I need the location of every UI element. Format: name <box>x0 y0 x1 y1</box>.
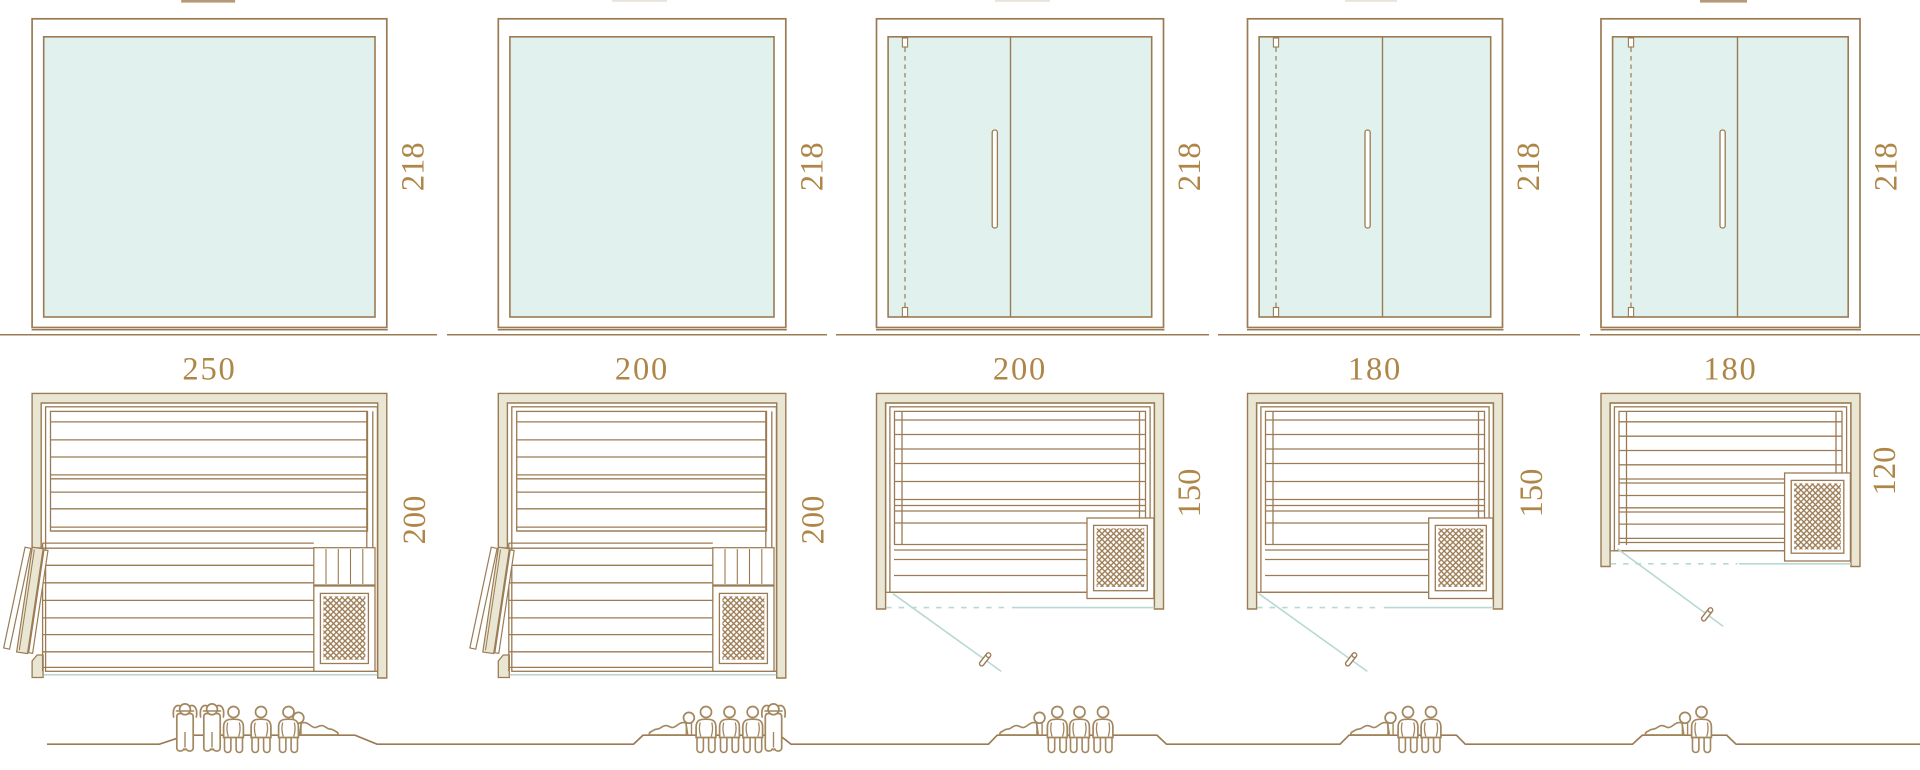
svg-text:150: 150 <box>1172 469 1208 518</box>
svg-text:218: 218 <box>1172 142 1208 191</box>
svg-text:250: 250 <box>182 352 236 388</box>
svg-text:218: 218 <box>1869 142 1905 191</box>
svg-text:180: 180 <box>1703 352 1757 388</box>
svg-text:120: 120 <box>1867 447 1903 496</box>
svg-text:200: 200 <box>796 496 832 545</box>
svg-text:218: 218 <box>794 142 830 191</box>
svg-text:200: 200 <box>993 352 1047 388</box>
svg-text:218: 218 <box>1511 142 1547 191</box>
svg-text:150: 150 <box>1514 469 1550 518</box>
svg-text:218: 218 <box>395 142 431 191</box>
svg-text:200: 200 <box>397 496 433 545</box>
svg-text:200: 200 <box>615 352 669 388</box>
svg-text:180: 180 <box>1348 352 1402 388</box>
